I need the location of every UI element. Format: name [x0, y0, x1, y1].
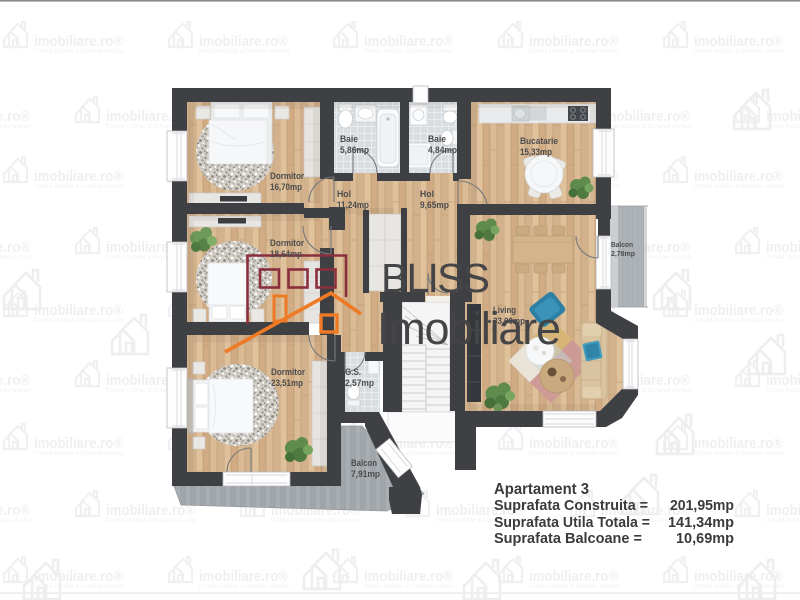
svg-text:Imobiliare: Imobiliare [377, 303, 561, 354]
svg-text:Dormitor: Dormitor [270, 171, 304, 181]
svg-text:Baie: Baie [428, 134, 446, 144]
svg-text:10,69mp: 10,69mp [676, 530, 734, 547]
svg-text:33,00mp: 33,00mp [493, 316, 525, 326]
svg-text:Balcon: Balcon [611, 240, 633, 249]
svg-text:5,86mp: 5,86mp [340, 145, 369, 155]
svg-text:15,33mp: 15,33mp [520, 147, 552, 157]
svg-text:Suprafata Construita =: Suprafata Construita = [494, 497, 648, 514]
svg-text:141,34mp: 141,34mp [668, 514, 734, 531]
svg-text:201,95mp: 201,95mp [670, 497, 734, 514]
svg-text:4,84mp: 4,84mp [428, 145, 457, 155]
svg-text:2,78mp: 2,78mp [611, 249, 635, 258]
svg-text:BLISS: BLISS [381, 255, 490, 301]
svg-text:Hol: Hol [337, 189, 351, 199]
svg-text:Suprafata Balcoane =: Suprafata Balcoane = [494, 530, 642, 547]
svg-text:G.S.: G.S. [345, 367, 361, 377]
svg-text:7,91mp: 7,91mp [351, 469, 380, 479]
svg-text:Suprafata Utila Totala =: Suprafata Utila Totala = [494, 514, 650, 531]
svg-text:11,24mp: 11,24mp [337, 200, 369, 210]
svg-text:Bucatarie: Bucatarie [520, 136, 558, 146]
svg-text:Baie: Baie [340, 134, 358, 144]
svg-text:Hol: Hol [420, 189, 434, 199]
svg-text:16,70mp: 16,70mp [270, 182, 302, 192]
svg-text:9,65mp: 9,65mp [420, 200, 449, 210]
svg-text:2,57mp: 2,57mp [345, 378, 374, 388]
svg-text:Dormitor: Dormitor [271, 367, 305, 377]
svg-text:18,64mp: 18,64mp [270, 249, 302, 259]
svg-text:Apartament 3: Apartament 3 [494, 481, 589, 498]
svg-text:Balcon: Balcon [351, 458, 377, 468]
svg-text:23,51mp: 23,51mp [271, 378, 303, 388]
svg-text:Living: Living [493, 305, 516, 315]
svg-text:Dormitor: Dormitor [270, 238, 304, 248]
